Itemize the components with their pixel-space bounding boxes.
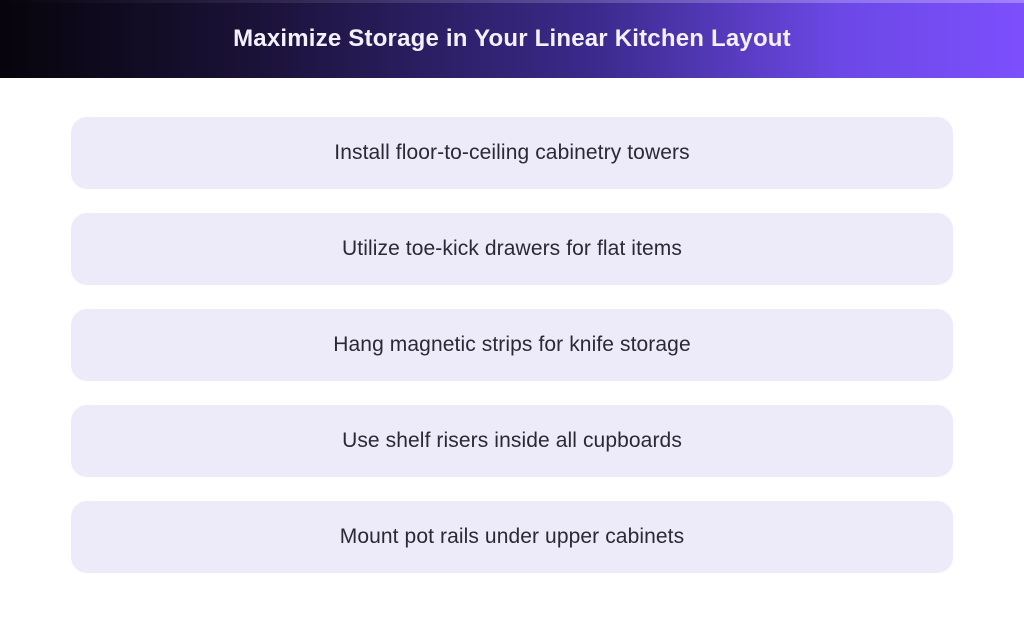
list-item-label: Install floor-to-ceiling cabinetry tower… xyxy=(334,141,689,165)
tip-card-list: Install floor-to-ceiling cabinetry tower… xyxy=(0,78,1024,573)
page-title: Maximize Storage in Your Linear Kitchen … xyxy=(233,25,791,53)
list-item-label: Hang magnetic strips for knife storage xyxy=(333,333,690,357)
list-item-label: Use shelf risers inside all cupboards xyxy=(342,429,682,453)
list-item: Use shelf risers inside all cupboards xyxy=(71,405,953,477)
list-item: Install floor-to-ceiling cabinetry tower… xyxy=(71,117,953,189)
list-item-label: Utilize toe-kick drawers for flat items xyxy=(342,237,682,261)
list-item: Mount pot rails under upper cabinets xyxy=(71,501,953,573)
list-item-label: Mount pot rails under upper cabinets xyxy=(340,525,684,549)
list-item: Hang magnetic strips for knife storage xyxy=(71,309,953,381)
header-banner: Maximize Storage in Your Linear Kitchen … xyxy=(0,0,1024,78)
list-item: Utilize toe-kick drawers for flat items xyxy=(71,213,953,285)
